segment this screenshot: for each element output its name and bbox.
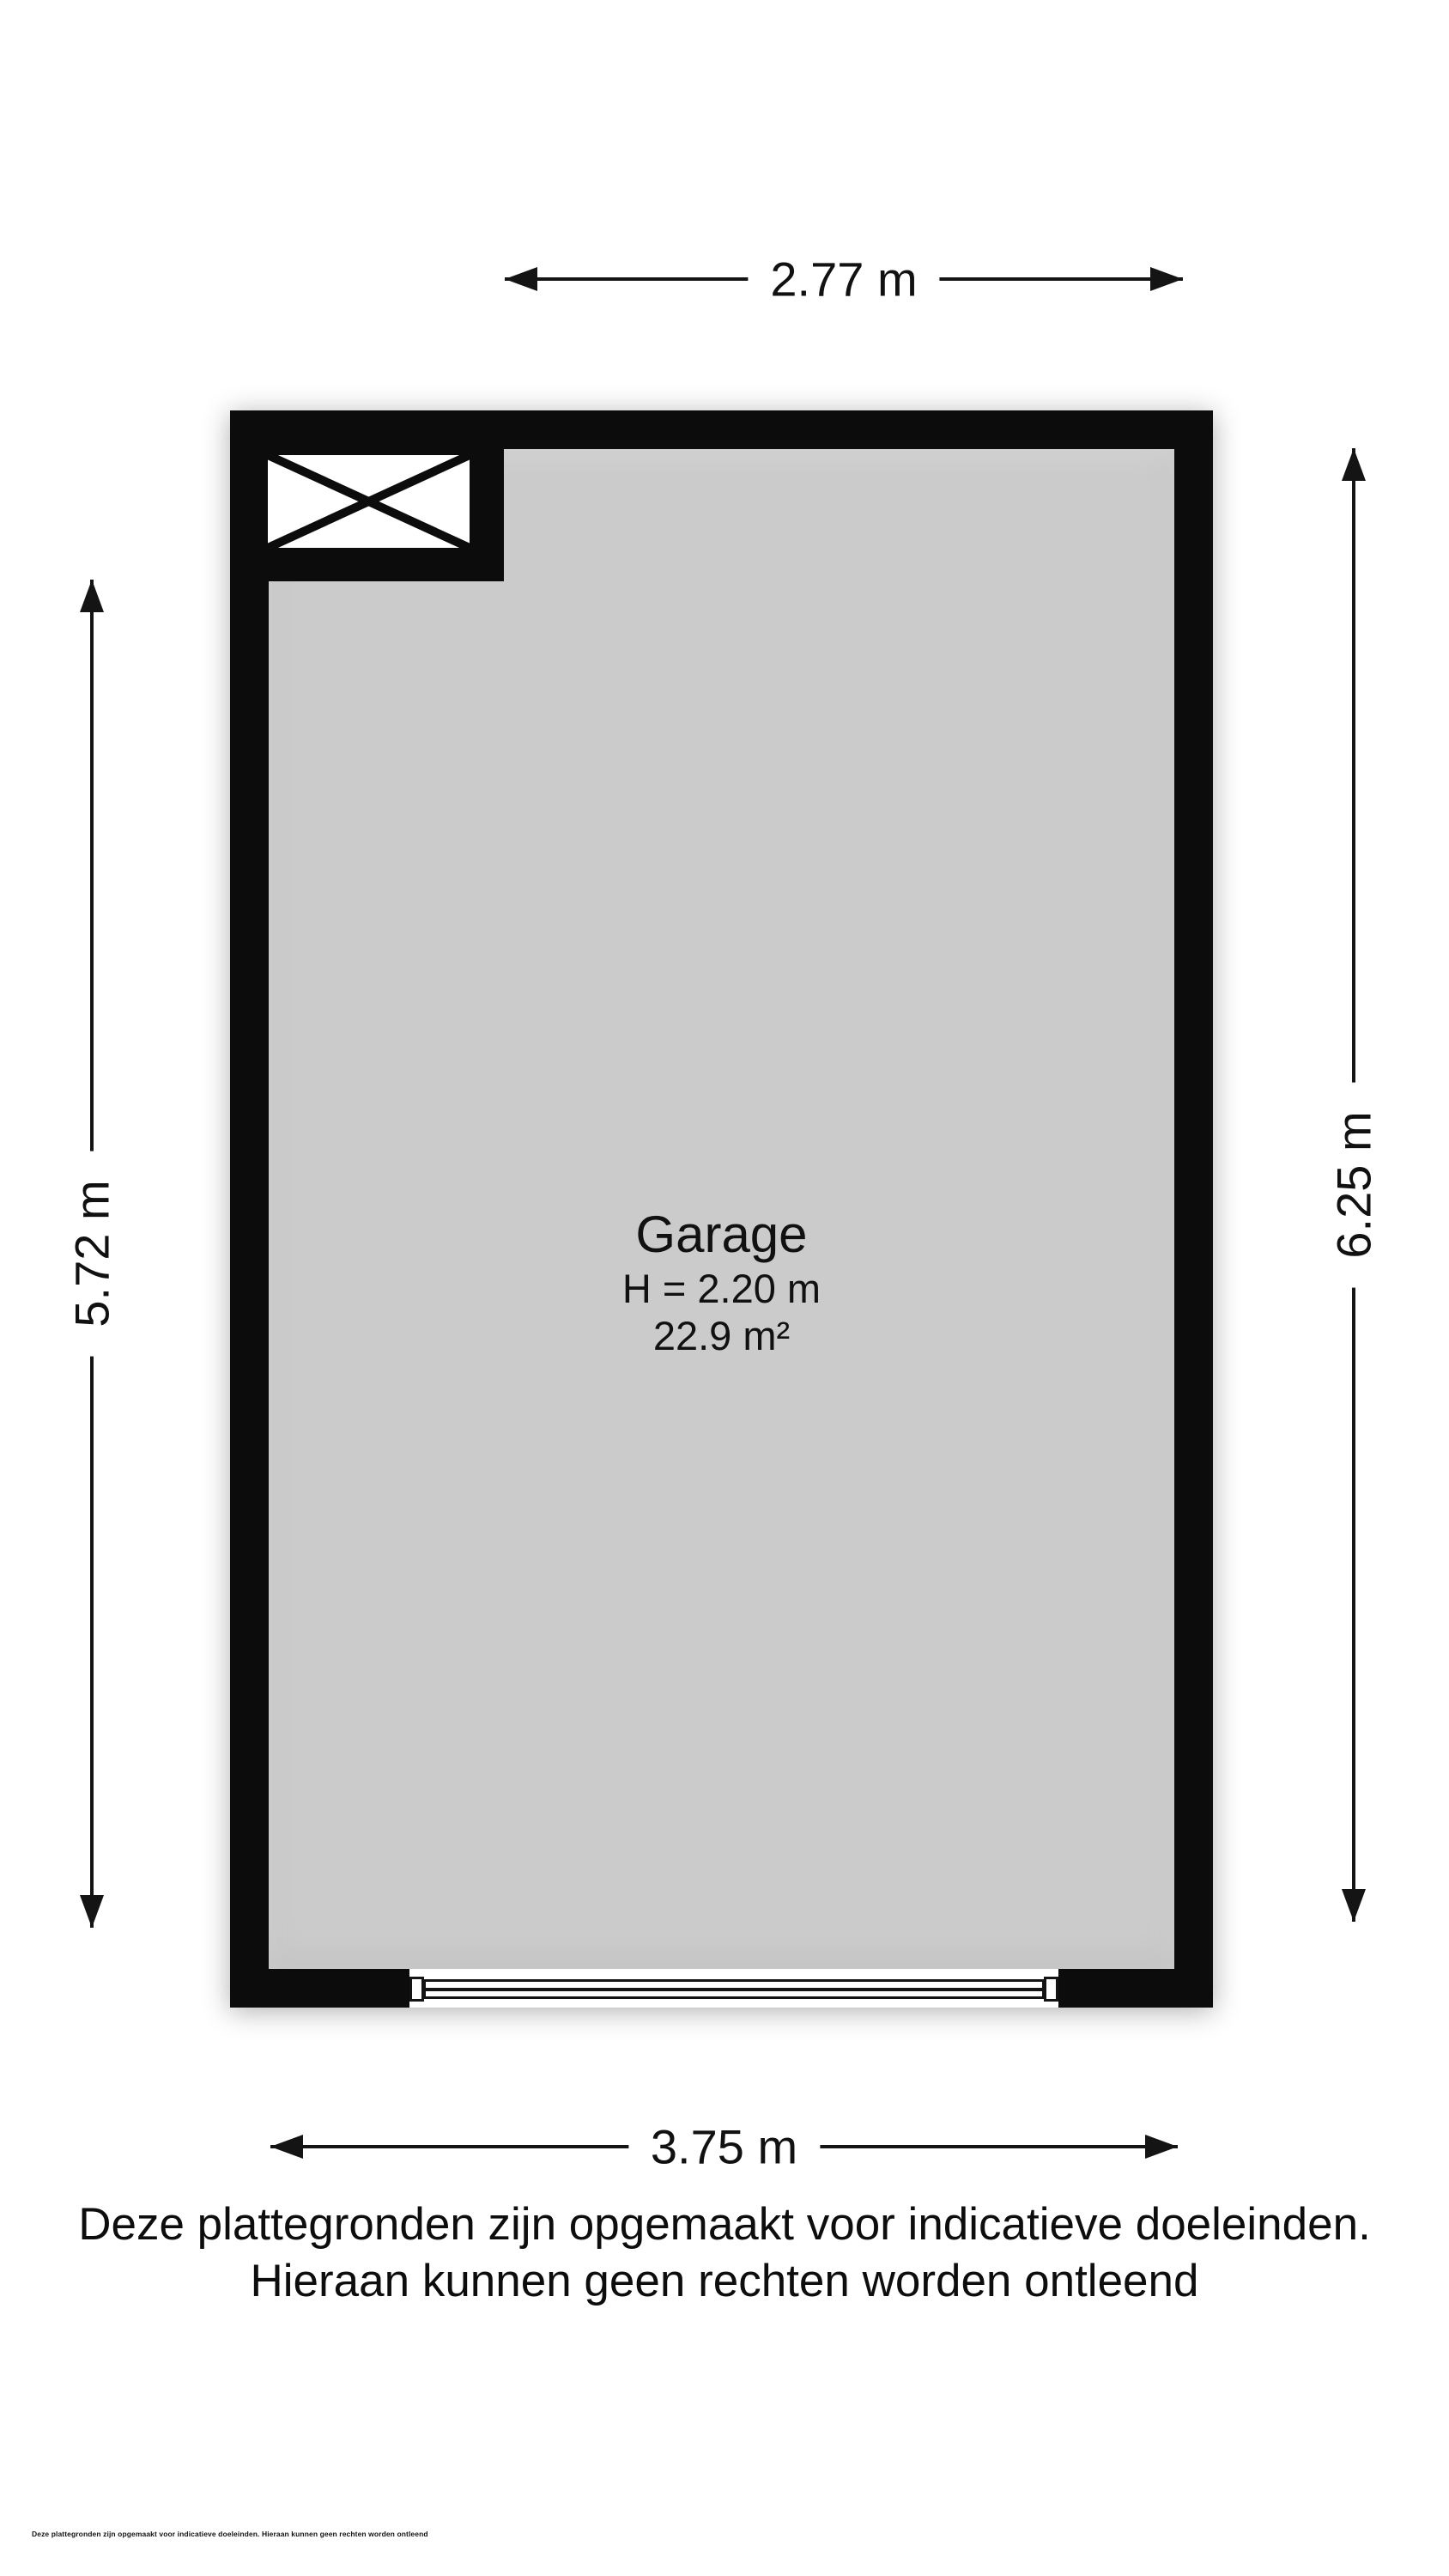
room-name: Garage [269,1205,1174,1265]
floorplan-page: 2.77 m 5.72 m 6.25 m Garage [0,0,1449,2576]
footnote: Deze plattegronden zijn opgemaakt voor i… [32,2530,428,2538]
dimension-top-label: 2.77 m [748,250,939,309]
arrow-right-icon [1145,2135,1178,2159]
disclaimer-line-2: Hieraan kunnen geen rechten worden ontle… [0,2253,1449,2310]
door-jamb-left [409,1977,424,2002]
door-jamb-right [1044,1977,1058,2002]
arrow-left-icon [505,267,537,291]
door-leaf-line [426,1988,1042,1991]
crossed-void [268,455,470,548]
room-ceiling-height: H = 2.20 m [269,1265,1174,1312]
arrow-up-icon [80,580,104,612]
arrow-right-icon [1150,267,1183,291]
dimension-left-label: 5.72 m [63,1151,122,1356]
dimension-bottom-label: 3.75 m [628,2117,820,2177]
arrow-up-icon [1342,448,1366,481]
dimension-top: 2.77 m [505,252,1183,307]
disclaimer: Deze plattegronden zijn opgemaakt voor i… [0,2196,1449,2310]
dimension-bottom: 3.75 m [270,2119,1178,2174]
wall-niche [230,410,504,581]
dimension-right-label: 6.25 m [1325,1082,1384,1287]
dimension-left: 5.72 m [64,580,119,1928]
floorplan: Garage H = 2.20 m 22.9 m² [230,410,1213,2008]
arrow-down-icon [1342,1889,1366,1922]
arrow-left-icon [270,2135,303,2159]
room-label: Garage H = 2.20 m 22.9 m² [269,1205,1174,1359]
arrow-down-icon [80,1895,104,1928]
room-area: 22.9 m² [269,1312,1174,1359]
dimension-right: 6.25 m [1326,448,1381,1922]
disclaimer-line-1: Deze plattegronden zijn opgemaakt voor i… [0,2196,1449,2253]
garage-door [409,1969,1058,2008]
cross-icon [268,455,470,548]
door-leaf [423,1979,1045,1999]
